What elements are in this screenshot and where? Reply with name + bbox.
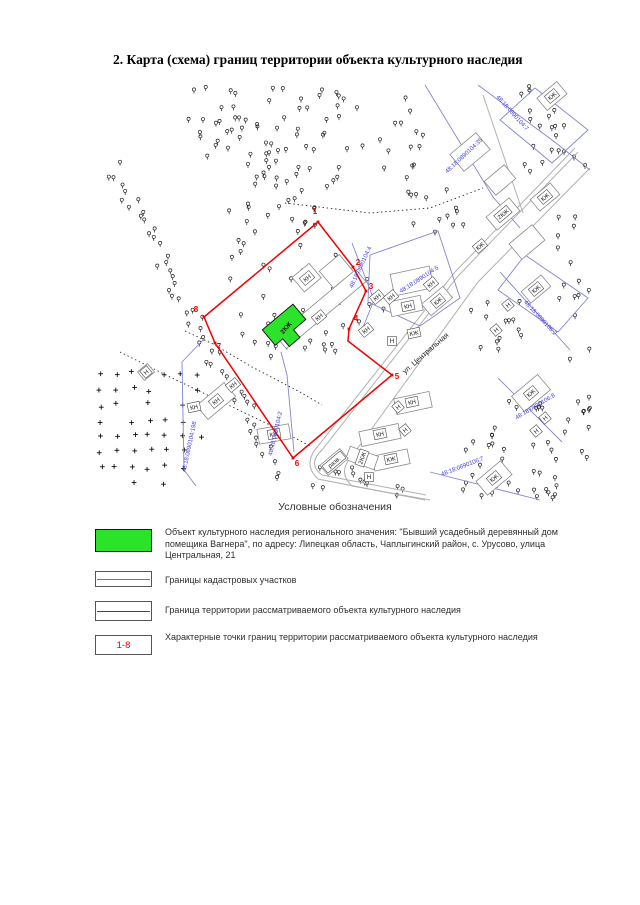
meadow-plus-icon: [164, 447, 169, 452]
tree-icon: [214, 121, 217, 127]
tree-icon: [507, 319, 510, 325]
meadow-plus-icon: [96, 388, 101, 393]
tree-icon: [334, 470, 337, 476]
tree-icon: [569, 261, 572, 267]
tree-icon: [275, 126, 278, 132]
tree-icon: [410, 193, 413, 199]
tree-icon: [245, 219, 248, 225]
building-type-label: КЖ: [407, 327, 421, 339]
tree-icon: [409, 109, 412, 115]
tree-icon: [497, 347, 500, 353]
tree-icon: [547, 114, 550, 120]
tree-icon: [267, 341, 270, 347]
tree-icon: [254, 436, 257, 442]
tree-icon: [221, 370, 224, 376]
tree-icon: [479, 346, 482, 352]
legend-swatch-boundary-points: 1-8: [95, 635, 152, 655]
boundary-point-label: 6: [295, 459, 300, 468]
tree-icon: [156, 264, 159, 270]
meadow-plus-icon: [161, 482, 166, 487]
tree-icon: [587, 395, 590, 401]
tree-icon: [585, 455, 588, 461]
tree-icon: [295, 133, 298, 139]
tree-icon: [355, 106, 358, 112]
tree-icon: [311, 484, 314, 490]
tree-icon: [545, 488, 548, 494]
tree-icon: [306, 106, 309, 112]
tree-icon: [241, 332, 244, 338]
tree-icon: [201, 118, 204, 124]
tree-icon: [232, 105, 235, 111]
tree-icon: [263, 175, 266, 181]
tree-icon: [234, 116, 237, 122]
tree-icon: [557, 149, 560, 155]
tree-icon: [337, 114, 340, 120]
tree-icon: [554, 124, 557, 130]
tree-icon: [425, 196, 428, 202]
tree-icon: [112, 176, 115, 182]
building-type-label: КН: [369, 289, 384, 304]
tree-icon: [438, 217, 441, 223]
meadow-plus-icon: [145, 432, 150, 437]
tree-icon: [332, 179, 335, 185]
map-figure: КНКНКНКНКНКНКЖКНКЖНКЖ2КЖКЖКЖКЖННКННКНН2К…: [0, 78, 640, 510]
tree-icon: [574, 215, 577, 221]
tree-icon: [120, 198, 123, 204]
tree-icon: [471, 473, 474, 479]
legend-swatch-heritage-object: [95, 529, 152, 552]
tree-icon: [541, 160, 544, 166]
tree-icon: [507, 481, 510, 487]
tree-icon: [532, 443, 535, 449]
tree-icon: [528, 169, 531, 175]
meadow-plus-icon: [133, 432, 138, 437]
tree-icon: [276, 148, 279, 154]
tree-icon: [361, 144, 364, 150]
tree-icon: [127, 205, 130, 211]
tree-icon: [538, 471, 541, 477]
tree-icon: [378, 138, 381, 144]
tree-icon: [265, 159, 268, 165]
boundary-point-label: 5: [395, 372, 400, 381]
boundary-point-label: 7: [217, 342, 222, 351]
tree-icon: [204, 85, 207, 91]
legend-item-boundary-points: Характерные точки границ территории расс…: [165, 632, 593, 644]
tree-icon: [262, 171, 265, 177]
tree-icon: [152, 235, 155, 241]
tree-icon: [228, 209, 231, 215]
tree-icon: [412, 222, 415, 228]
meadow-plus-icon: [146, 389, 151, 394]
tree-icon: [462, 488, 465, 494]
tree-icon: [268, 99, 271, 105]
tree-icon: [394, 121, 397, 127]
tree-icon: [275, 184, 278, 190]
tree-icon: [285, 179, 288, 185]
tree-icon: [253, 404, 256, 410]
tree-icon: [587, 425, 590, 431]
tree-icon: [538, 124, 541, 130]
tree-icon: [405, 176, 408, 182]
tree-icon: [118, 160, 121, 166]
tree-icon: [153, 227, 156, 233]
tree-icon: [577, 293, 580, 299]
tree-icon: [171, 275, 174, 281]
tree-icon: [308, 166, 311, 172]
meadow-plus-icon: [115, 434, 120, 439]
svg-text:Н: Н: [367, 475, 371, 481]
tree-icon: [404, 96, 407, 102]
tree-icon: [414, 193, 417, 199]
tree-icon: [342, 97, 345, 103]
tree-icon: [268, 267, 271, 273]
tree-icon: [553, 108, 556, 114]
tree-icon: [246, 400, 249, 406]
tree-icon: [230, 128, 233, 134]
tree-icon: [271, 86, 274, 92]
tree-icon: [139, 214, 142, 220]
tree-icon: [143, 218, 146, 224]
tree-icon: [550, 148, 553, 154]
building-type-label: Н: [388, 336, 397, 345]
meadow-plus-icon: [132, 448, 137, 453]
tree-icon: [399, 121, 402, 127]
tree-icon: [305, 144, 308, 150]
tree-icon: [173, 281, 176, 287]
tree-icon: [218, 119, 221, 125]
boundary-vertex-tick: [391, 374, 394, 377]
meadow-plus-icon: [115, 448, 120, 453]
tree-icon: [253, 423, 256, 429]
meadow-plus-icon: [98, 371, 103, 376]
tree-icon: [206, 154, 209, 160]
tree-icon: [253, 230, 256, 236]
tree-icon: [147, 232, 150, 238]
tree-icon: [239, 249, 242, 255]
tree-icon: [239, 313, 242, 319]
tree-icon: [192, 88, 195, 94]
meadow-plus-icon: [132, 480, 137, 485]
meadow-plus-icon: [180, 433, 185, 438]
tree-icon: [464, 448, 467, 454]
tree-icon: [588, 347, 591, 353]
tree-icon: [254, 182, 257, 188]
tree-icon: [159, 241, 162, 247]
tree-icon: [345, 147, 348, 153]
tree-icon: [577, 279, 580, 285]
tree-icon: [325, 117, 328, 123]
tree-icon: [495, 340, 498, 346]
tree-icon: [244, 118, 247, 124]
legend-swatch-territory-border: [95, 601, 152, 621]
tree-icon: [233, 399, 236, 405]
tree-icon: [409, 145, 412, 151]
tree-icon: [267, 165, 270, 171]
tree-icon: [555, 484, 558, 490]
meadow-plus-icon: [100, 464, 105, 469]
tree-icon: [249, 152, 252, 158]
tree-icon: [299, 97, 302, 103]
meadow-plus-icon: [99, 405, 104, 410]
tree-icon: [532, 488, 535, 494]
meadow-plus-icon: [199, 435, 204, 440]
boundary-vertex-tick: [365, 290, 368, 293]
tree-icon: [274, 159, 277, 165]
tree-icon: [512, 318, 515, 324]
tree-icon: [299, 243, 302, 249]
tree-icon: [504, 319, 507, 325]
meadow-plus-icon: [145, 467, 150, 472]
tree-icon: [516, 489, 519, 495]
tree-icon: [520, 92, 523, 98]
boundary-vertex-tick: [317, 221, 320, 224]
tree-icon: [205, 360, 208, 366]
tree-icon: [322, 343, 325, 349]
tree-icon: [334, 349, 337, 355]
tree-icon: [264, 141, 267, 147]
tree-icon: [220, 106, 223, 112]
tree-icon: [576, 400, 579, 406]
meadow-plus-icon: [132, 385, 137, 390]
tree-icon: [383, 166, 386, 172]
tree-icon: [550, 126, 553, 132]
tree-icon: [554, 134, 557, 140]
tree-icon: [238, 116, 241, 122]
tree-icon: [550, 448, 553, 454]
meadow-plus-icon: [98, 434, 103, 439]
tree-icon: [563, 430, 566, 436]
meadow-plus-icon: [129, 420, 134, 425]
tree-icon: [337, 94, 340, 100]
meadow-plus-icon: [148, 418, 153, 423]
tree-icon: [418, 145, 421, 151]
meadow-plus-icon: [130, 465, 135, 470]
page-title: 2. Карта (схема) границ территории объек…: [113, 52, 583, 68]
boundary-point-label: 4: [354, 314, 359, 323]
tree-icon: [520, 333, 523, 339]
boundary-vertex-tick: [203, 316, 206, 319]
cadastral-number-label: 48:18:0890104:198: [182, 420, 199, 472]
boundary-point-label: 8: [194, 305, 199, 314]
tree-icon: [262, 294, 265, 300]
meadow-plus-icon: [163, 417, 168, 422]
tree-icon: [556, 234, 559, 240]
tree-icon: [225, 375, 228, 381]
building-outline: [509, 225, 545, 260]
tree-icon: [491, 442, 494, 448]
tree-icon: [107, 175, 110, 181]
meadow-plus-icon: [162, 433, 167, 438]
tree-icon: [246, 418, 249, 424]
tree-icon: [321, 486, 324, 492]
tree-icon: [342, 324, 345, 330]
building-type-label: Н: [365, 472, 374, 481]
tree-icon: [242, 242, 245, 248]
tree-icon: [546, 441, 549, 447]
tree-icon: [556, 246, 559, 252]
meadow-plus-icon: [149, 447, 154, 452]
tree-icon: [275, 176, 278, 182]
tree-icon: [325, 184, 328, 190]
tree-icon: [137, 198, 140, 204]
legend-item-heritage-object: Объект культурного наследия региональног…: [165, 527, 593, 562]
tree-icon: [532, 469, 535, 475]
legend-swatch-cadastral-borders: [95, 571, 152, 587]
tree-icon: [265, 152, 268, 158]
tree-icon: [169, 269, 172, 275]
meadow-plus-icon: [145, 400, 150, 405]
tree-icon: [454, 206, 457, 212]
boundary-point-label: 1: [313, 207, 318, 216]
building-type-label: Н: [530, 425, 543, 438]
tree-icon: [237, 238, 240, 244]
tree-icon: [529, 117, 532, 123]
cadastral-number-label: 48:18:0890106:7: [441, 456, 486, 478]
tree-icon: [515, 405, 518, 411]
tree-icon: [330, 342, 333, 348]
tree-icon: [568, 357, 571, 363]
meadow-plus-icon: [112, 464, 117, 469]
boundary-vertex-tick: [348, 328, 351, 331]
tree-icon: [562, 124, 565, 130]
tree-icon: [229, 89, 232, 95]
territory-border-line-sample: [97, 611, 150, 612]
tree-icon: [337, 470, 340, 476]
svg-text:Н: Н: [390, 339, 394, 345]
tree-icon: [547, 491, 550, 497]
tree-icon: [255, 442, 258, 448]
tree-icon: [255, 175, 258, 181]
tree-icon: [300, 188, 303, 194]
cadastral-number-label: 48:18:0890104:7: [494, 95, 529, 133]
tree-icon: [284, 147, 287, 153]
tree-icon: [243, 394, 246, 400]
building-type-label: КН: [187, 401, 201, 413]
tree-icon: [365, 482, 368, 488]
tree-icon: [210, 349, 213, 355]
tree-icon: [335, 90, 338, 96]
tree-icon: [199, 135, 202, 141]
tree-icon: [177, 297, 180, 303]
tree-icon: [337, 165, 340, 171]
tree-icon: [226, 129, 229, 135]
tree-icon: [336, 175, 339, 181]
tree-icon: [557, 215, 560, 221]
tree-icon: [199, 327, 202, 333]
cadastral-line-sample: [97, 579, 150, 580]
tree-icon: [124, 189, 127, 195]
tree-icon: [493, 426, 496, 432]
tree-icon: [352, 472, 355, 478]
tree-icon: [297, 165, 300, 171]
tree-icon: [480, 494, 483, 500]
tree-icon: [240, 126, 243, 132]
meadow-plus-icon: [195, 388, 200, 393]
tree-icon: [387, 149, 390, 155]
tree-icon: [445, 188, 448, 194]
tree-icon: [562, 283, 565, 289]
tree-icon: [170, 294, 173, 300]
tree-icon: [415, 130, 418, 136]
tree-icon: [324, 348, 327, 354]
legend-title: Условные обозначения: [15, 501, 640, 513]
map-canvas: КНКНКНКНКНКНКЖКНКЖНКЖ2КЖКЖКЖКЖННКННКНН2К…: [0, 78, 640, 510]
tree-icon: [320, 88, 323, 94]
tree-icon: [336, 104, 339, 110]
tree-icon: [303, 346, 306, 352]
tree-icon: [247, 205, 250, 211]
tree-icon: [309, 339, 312, 345]
tree-icon: [462, 223, 465, 229]
legend-item-territory-border: Граница территории рассматриваемого объе…: [165, 605, 593, 617]
tree-icon: [226, 146, 229, 152]
tree-icon: [234, 91, 237, 97]
meadow-plus-icon: [195, 373, 200, 378]
cadastral-number-label: 48:18:0890106:2: [522, 300, 558, 338]
tree-icon: [293, 197, 296, 203]
tree-icon: [554, 457, 557, 463]
tree-icon: [167, 288, 170, 294]
tree-icon: [573, 294, 576, 300]
tree-icon: [485, 315, 488, 321]
tree-icon: [580, 449, 583, 455]
tree-icon: [249, 429, 252, 435]
tree-icon: [587, 288, 590, 294]
building-type-label: Н: [539, 412, 552, 425]
tree-icon: [553, 476, 556, 482]
tree-icon: [452, 223, 455, 229]
tree-icon: [275, 475, 278, 481]
tree-icon: [165, 260, 168, 266]
tree-icon: [572, 224, 575, 230]
tree-icon: [490, 433, 493, 439]
boundary-vertex-tick: [352, 266, 355, 269]
meadow-plus-icon: [113, 401, 118, 406]
boundary-point-label: 3: [369, 282, 374, 291]
meadow-plus-icon: [98, 420, 103, 425]
tree-icon: [214, 143, 217, 149]
tree-icon: [567, 418, 570, 424]
tree-icon: [238, 135, 241, 141]
tree-icon: [230, 255, 233, 261]
tree-icon: [269, 354, 272, 360]
tree-icon: [487, 443, 490, 449]
tree-icon: [312, 148, 315, 154]
tree-icon: [273, 313, 276, 319]
tree-icon: [446, 214, 449, 220]
meadow-plus-icon: [129, 369, 134, 374]
tree-icon: [277, 205, 280, 211]
tree-icon: [296, 229, 299, 235]
street-name-label: ул. Центральная: [400, 331, 450, 376]
meadow-plus-icon: [97, 450, 102, 455]
building-type-label: Н: [490, 324, 503, 337]
tree-icon: [472, 440, 475, 446]
tree-icon: [229, 277, 232, 283]
tree-icon: [351, 466, 354, 472]
meadow-plus-icon: [113, 388, 118, 393]
tree-icon: [523, 163, 526, 169]
tree-icon: [253, 340, 256, 346]
tree-icon: [281, 87, 284, 93]
tree-icon: [291, 217, 294, 223]
tree-icon: [508, 399, 511, 405]
tree-icon: [266, 213, 269, 219]
tree-icon: [295, 172, 298, 178]
tree-icon: [246, 162, 249, 168]
tree-icon: [273, 460, 276, 466]
tree-icon: [470, 308, 473, 314]
